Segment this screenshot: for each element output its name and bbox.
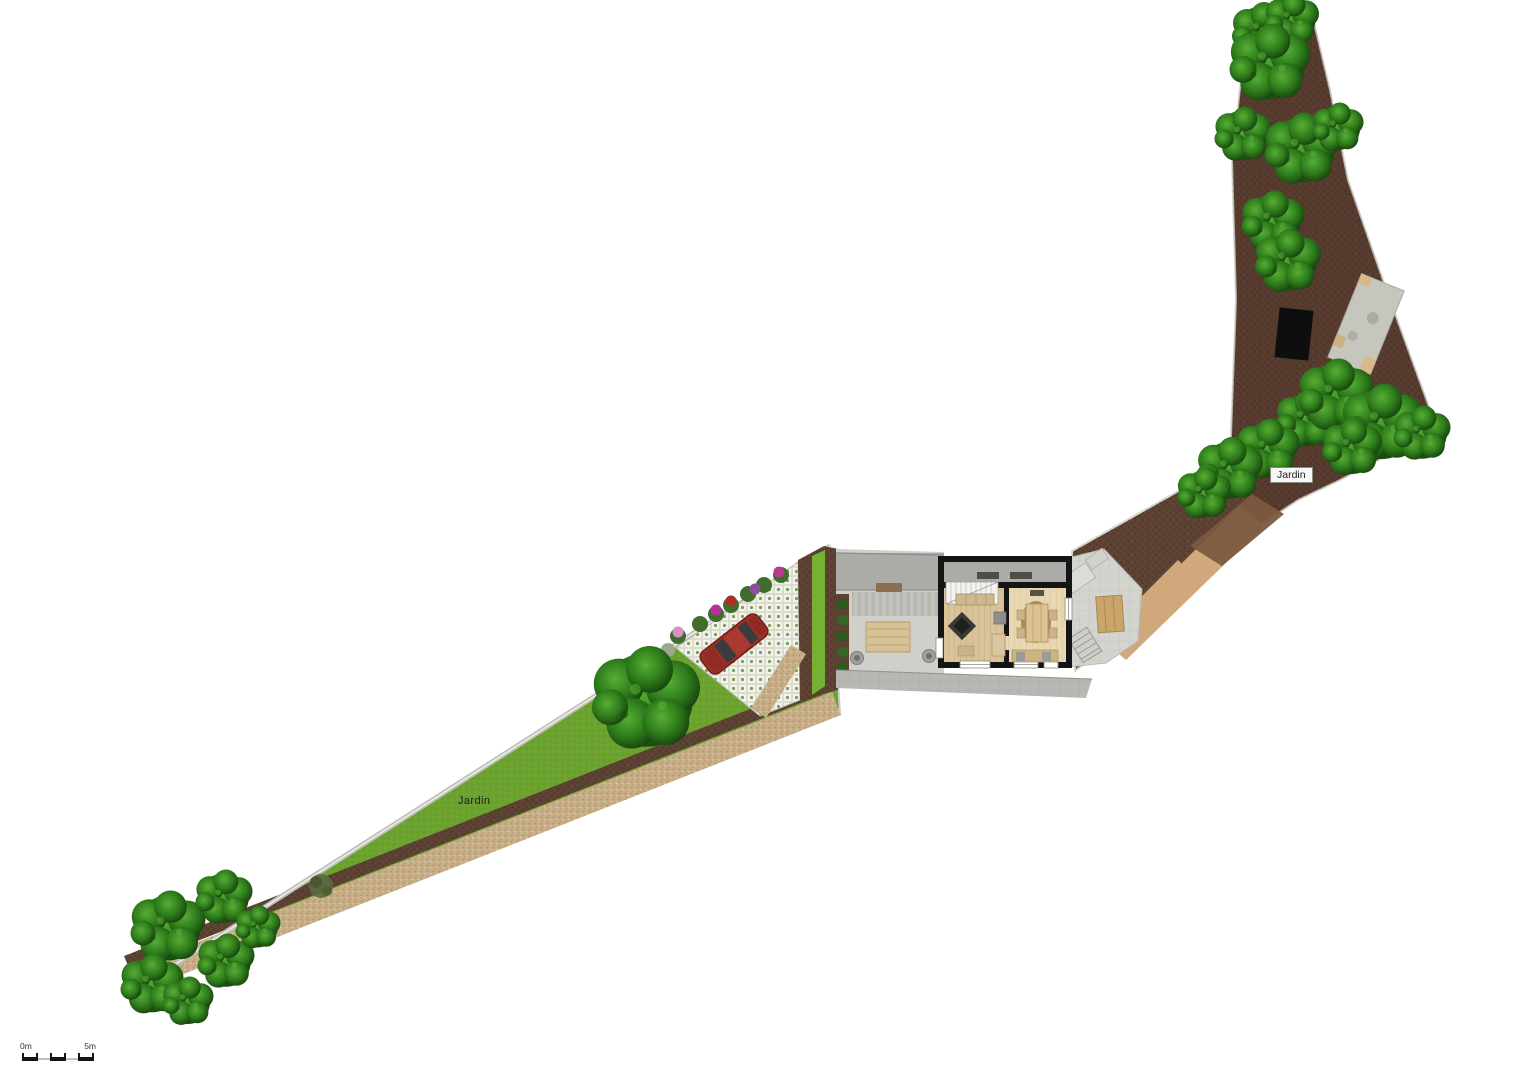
- doormat: [1010, 572, 1032, 579]
- scale-end-label: 5m: [84, 1041, 96, 1051]
- appliance: [1042, 652, 1051, 661]
- chair: [1049, 628, 1057, 638]
- chair: [1017, 628, 1025, 638]
- scale-start-label: 0m: [20, 1041, 32, 1051]
- sofa: [956, 594, 994, 605]
- flower-magenta: [711, 605, 722, 616]
- soil-strip-texture: [124, 679, 831, 968]
- flower-pink: [673, 627, 684, 638]
- planter-bush: [837, 631, 848, 642]
- site-plan-canvas: Jardin Jardin 0m 5m: [0, 0, 1536, 1087]
- divider-wall: [1004, 585, 1009, 636]
- flower-purple: [750, 584, 761, 595]
- lounge-chair: [992, 634, 1005, 656]
- chair: [1049, 610, 1057, 620]
- tip-tree-cluster: [121, 870, 281, 1025]
- site-plan: [0, 0, 1536, 1087]
- planter-bush: [838, 647, 849, 658]
- lawn-strip: [812, 550, 825, 695]
- flower-magenta: [774, 567, 785, 578]
- house: [936, 556, 1072, 668]
- north-gallery: [938, 562, 1072, 584]
- garden-right-label-text: Jardin: [1277, 469, 1306, 481]
- cabinet: [1030, 590, 1044, 596]
- wooden-table: [1096, 595, 1124, 633]
- scale-bar: 0m 5m: [20, 1041, 96, 1067]
- lawn-shrub: [309, 874, 333, 898]
- doormat: [977, 572, 999, 579]
- dining-table: [1026, 604, 1048, 642]
- tree: [163, 977, 214, 1025]
- round-planter: [851, 652, 864, 665]
- side-table: [994, 612, 1006, 624]
- appliance: [1016, 652, 1025, 661]
- wall: [1066, 556, 1072, 584]
- planter-bush: [838, 615, 849, 626]
- left-garden-parcel: [121, 546, 842, 1025]
- striped-decking: [852, 592, 942, 616]
- garden-left-label: Jardin: [458, 795, 490, 807]
- wall: [938, 556, 944, 584]
- planter-bush: [837, 599, 848, 610]
- chair: [1017, 610, 1025, 620]
- garden-right-label: Jardin: [1270, 467, 1313, 483]
- planter-bush: [837, 661, 847, 671]
- doormat: [876, 583, 902, 592]
- ottoman: [958, 646, 974, 656]
- bush: [692, 616, 708, 632]
- flower-red: [726, 596, 737, 607]
- round-planter: [923, 650, 936, 663]
- scale-bar-graphic: [20, 1052, 96, 1064]
- dark-structure: [1274, 307, 1313, 360]
- north-wall-outer: [938, 556, 1072, 562]
- deck-platform: [866, 622, 910, 652]
